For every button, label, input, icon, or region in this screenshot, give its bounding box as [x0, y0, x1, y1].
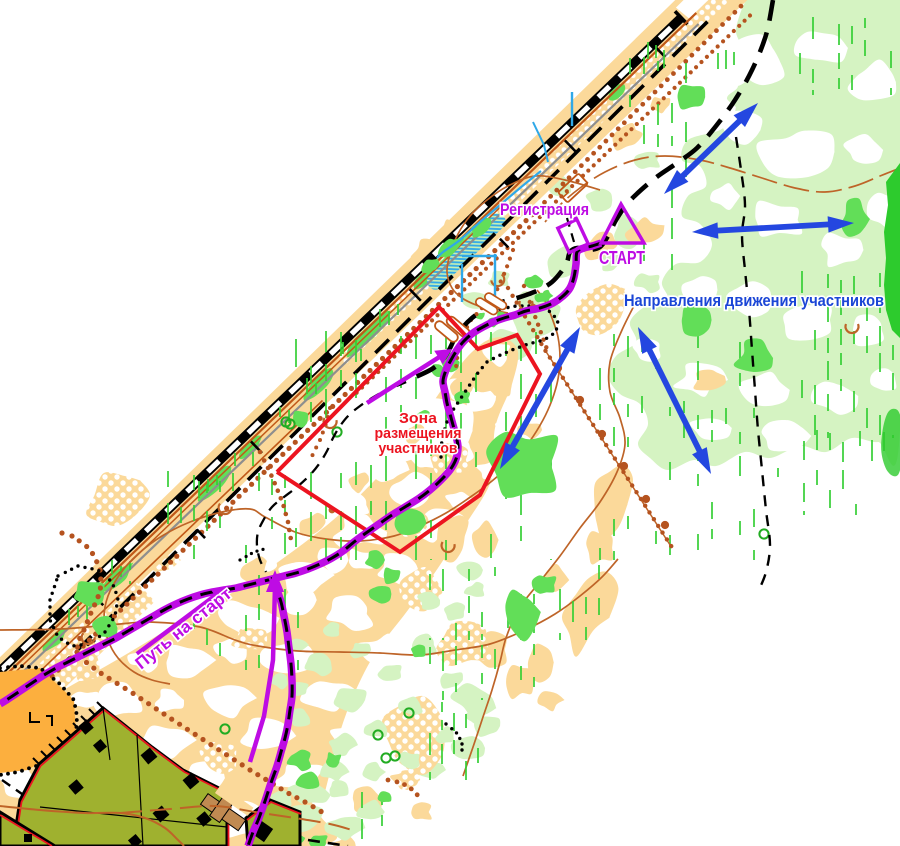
svg-text:Направления движения участнико: Направления движения участников: [624, 292, 884, 310]
svg-text:СТАРТ: СТАРТ: [599, 248, 645, 268]
svg-text:участников: участников: [379, 440, 458, 457]
svg-text:Регистрация: Регистрация: [500, 200, 589, 219]
